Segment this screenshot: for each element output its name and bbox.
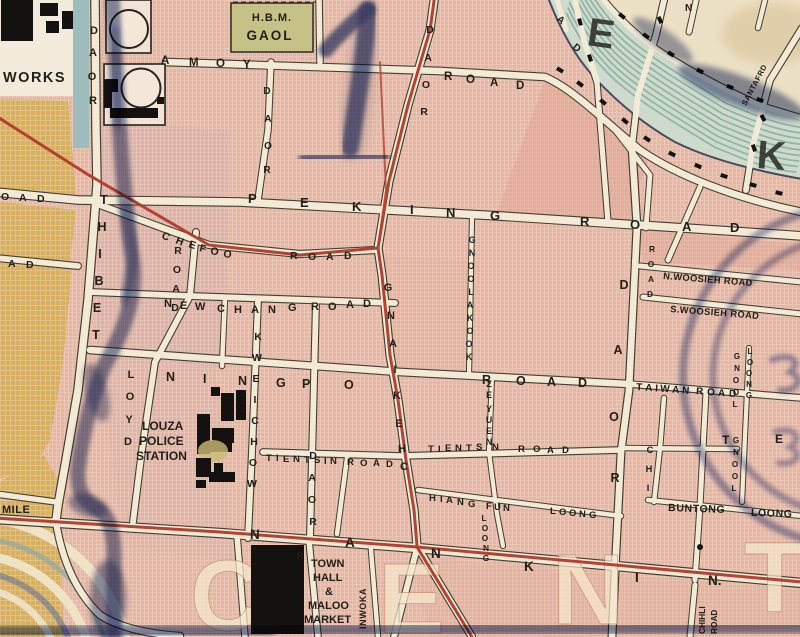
svg-text:R: R bbox=[580, 214, 590, 229]
svg-text:A: A bbox=[264, 114, 271, 125]
svg-text:O: O bbox=[746, 369, 752, 378]
svg-text:I: I bbox=[647, 483, 650, 493]
svg-text:O: O bbox=[88, 71, 97, 83]
svg-text:O: O bbox=[223, 248, 233, 261]
svg-text:D: D bbox=[37, 193, 45, 205]
svg-text:L: L bbox=[733, 400, 738, 409]
svg-text:N: N bbox=[552, 534, 624, 637]
svg-text:I: I bbox=[324, 456, 327, 467]
svg-text:U: U bbox=[486, 415, 492, 425]
svg-text:K: K bbox=[755, 133, 787, 179]
svg-text:Z: Z bbox=[486, 379, 492, 389]
svg-text:A: A bbox=[345, 535, 355, 550]
svg-text:H: H bbox=[646, 464, 653, 474]
svg-text:N: N bbox=[486, 437, 492, 447]
svg-text:W: W bbox=[660, 384, 671, 396]
svg-text:O: O bbox=[308, 494, 316, 506]
svg-text:C: C bbox=[217, 303, 225, 315]
svg-text:A: A bbox=[308, 472, 316, 484]
svg-text:LOUZA: LOUZA bbox=[142, 419, 184, 433]
svg-text:I: I bbox=[440, 494, 443, 505]
svg-text:G: G bbox=[589, 510, 596, 521]
svg-text:A: A bbox=[8, 258, 16, 270]
svg-text:R: R bbox=[297, 551, 304, 561]
svg-text:C: C bbox=[251, 415, 259, 427]
svg-text:D: D bbox=[578, 376, 587, 390]
svg-text:&: & bbox=[325, 586, 333, 598]
svg-text:Y: Y bbox=[125, 414, 133, 426]
svg-text:N: N bbox=[685, 3, 692, 14]
svg-text:D: D bbox=[26, 259, 34, 271]
svg-text:L: L bbox=[550, 506, 556, 517]
svg-text:TOWN: TOWN bbox=[311, 558, 344, 570]
svg-text:N: N bbox=[330, 456, 337, 467]
svg-text:O: O bbox=[1, 191, 9, 203]
svg-text:O: O bbox=[308, 251, 316, 263]
svg-text:POLICE: POLICE bbox=[139, 434, 184, 448]
svg-text:N: N bbox=[457, 497, 464, 508]
svg-text:K: K bbox=[524, 559, 534, 574]
svg-text:H.B.M.: H.B.M. bbox=[252, 12, 292, 24]
svg-text:A: A bbox=[672, 385, 680, 396]
svg-text:N: N bbox=[734, 364, 740, 373]
svg-text:A: A bbox=[326, 251, 334, 263]
svg-text:R: R bbox=[263, 165, 271, 176]
svg-text:O: O bbox=[609, 410, 619, 424]
svg-text:G: G bbox=[483, 553, 489, 563]
svg-text:O: O bbox=[466, 339, 473, 349]
svg-text:R: R bbox=[518, 444, 525, 455]
svg-text:R: R bbox=[311, 301, 319, 313]
svg-text:T: T bbox=[466, 443, 472, 454]
svg-text:H: H bbox=[97, 220, 106, 234]
svg-text:G: G bbox=[468, 499, 475, 510]
svg-text:R: R bbox=[290, 250, 298, 262]
svg-text:E: E bbox=[445, 443, 451, 454]
svg-text:K: K bbox=[467, 313, 474, 323]
svg-text:K: K bbox=[466, 352, 473, 362]
svg-text:G: G bbox=[469, 235, 476, 245]
svg-text:U: U bbox=[494, 502, 501, 513]
svg-text:A: A bbox=[373, 458, 380, 469]
svg-text:P: P bbox=[248, 191, 257, 206]
svg-text:STATION: STATION bbox=[136, 449, 187, 463]
svg-text:N: N bbox=[503, 503, 510, 514]
svg-text:I: I bbox=[98, 247, 101, 261]
svg-text:A: A bbox=[251, 304, 259, 316]
svg-text:R: R bbox=[174, 245, 182, 257]
svg-text:A: A bbox=[613, 343, 622, 357]
svg-text:R: R bbox=[347, 457, 354, 468]
svg-text:T: T bbox=[428, 444, 434, 455]
svg-text:Y: Y bbox=[486, 404, 492, 414]
svg-text:I: I bbox=[203, 372, 206, 386]
svg-text:G: G bbox=[276, 376, 286, 390]
svg-text:O: O bbox=[533, 444, 540, 455]
svg-text:L: L bbox=[481, 513, 486, 523]
svg-text:E: E bbox=[180, 300, 187, 312]
svg-text:O: O bbox=[733, 376, 739, 385]
svg-text:N: N bbox=[579, 509, 586, 520]
svg-text:O: O bbox=[516, 374, 526, 388]
svg-text:O: O bbox=[732, 460, 738, 469]
svg-text:BUNTONG: BUNTONG bbox=[668, 502, 725, 516]
svg-text:O: O bbox=[569, 508, 576, 519]
svg-text:W: W bbox=[252, 352, 262, 364]
svg-text:O: O bbox=[482, 523, 489, 533]
svg-text:E: E bbox=[252, 373, 259, 385]
svg-text:O: O bbox=[360, 458, 367, 469]
svg-text:A: A bbox=[547, 445, 554, 456]
svg-text:R: R bbox=[420, 106, 428, 118]
svg-text:A: A bbox=[682, 219, 692, 234]
svg-text:Y: Y bbox=[243, 59, 251, 71]
svg-text:R: R bbox=[309, 516, 317, 528]
svg-text:A: A bbox=[645, 383, 653, 394]
svg-text:P: P bbox=[302, 377, 310, 391]
svg-text:O: O bbox=[344, 378, 354, 392]
svg-text:I: I bbox=[410, 202, 414, 217]
svg-text:R: R bbox=[649, 244, 655, 254]
svg-text:D: D bbox=[426, 24, 434, 36]
svg-text:N.: N. bbox=[708, 573, 722, 588]
svg-text:D: D bbox=[344, 250, 352, 262]
svg-text:N: N bbox=[268, 304, 276, 316]
svg-text:N: N bbox=[446, 205, 455, 220]
svg-text:O: O bbox=[732, 472, 738, 481]
svg-text:O: O bbox=[467, 326, 474, 336]
svg-text:D: D bbox=[619, 278, 628, 292]
svg-text:N: N bbox=[483, 543, 489, 553]
svg-text:A: A bbox=[89, 47, 97, 59]
svg-text:G: G bbox=[288, 302, 297, 314]
svg-text:O: O bbox=[173, 264, 181, 276]
svg-text:N: N bbox=[387, 310, 395, 322]
svg-text:G: G bbox=[490, 208, 500, 223]
svg-text:H: H bbox=[234, 304, 242, 316]
svg-text:H: H bbox=[250, 436, 258, 448]
svg-text:O: O bbox=[216, 58, 225, 70]
svg-text:T: T bbox=[266, 453, 272, 464]
svg-text:D: D bbox=[90, 25, 98, 37]
svg-text:D: D bbox=[386, 459, 393, 470]
svg-text:H: H bbox=[398, 443, 406, 455]
svg-text:T: T bbox=[92, 328, 100, 342]
svg-text:E: E bbox=[93, 301, 101, 315]
svg-text:N: N bbox=[293, 454, 300, 465]
svg-text:L: L bbox=[128, 369, 135, 381]
svg-text:E: E bbox=[486, 390, 492, 400]
svg-text:GAOL: GAOL bbox=[247, 28, 294, 43]
svg-text:E: E bbox=[300, 195, 309, 210]
svg-text:K: K bbox=[254, 331, 262, 343]
svg-text:O: O bbox=[468, 274, 475, 284]
svg-text:K: K bbox=[352, 199, 362, 214]
svg-text:T: T bbox=[636, 382, 643, 393]
svg-text:O: O bbox=[422, 79, 430, 91]
svg-text:R: R bbox=[89, 95, 97, 107]
svg-text:D: D bbox=[562, 445, 569, 456]
svg-text:D: D bbox=[647, 289, 653, 299]
svg-text:D: D bbox=[124, 436, 132, 448]
svg-text:C: C bbox=[400, 461, 408, 473]
svg-text:A: A bbox=[547, 375, 556, 389]
svg-text:E: E bbox=[486, 426, 492, 436]
svg-text:MILE: MILE bbox=[2, 504, 30, 516]
svg-text:W: W bbox=[195, 301, 206, 313]
svg-text:N: N bbox=[455, 443, 462, 454]
svg-text:H: H bbox=[429, 493, 436, 504]
svg-text:INWOKA: INWOKA bbox=[358, 588, 368, 629]
svg-text:I: I bbox=[635, 570, 639, 585]
svg-text:D: D bbox=[730, 220, 739, 235]
svg-text:G: G bbox=[384, 282, 393, 294]
svg-text:D: D bbox=[363, 298, 371, 310]
svg-text:N: N bbox=[746, 380, 752, 389]
svg-text:L: L bbox=[468, 287, 474, 297]
svg-text:R: R bbox=[444, 71, 453, 83]
svg-text:O: O bbox=[482, 533, 489, 543]
svg-text:O: O bbox=[733, 388, 739, 397]
svg-text:D: D bbox=[171, 302, 179, 314]
svg-text:M: M bbox=[189, 57, 199, 69]
svg-text:O: O bbox=[126, 391, 135, 403]
svg-text:N: N bbox=[492, 442, 499, 453]
svg-text:G: G bbox=[734, 352, 740, 361]
svg-text:I: I bbox=[276, 453, 279, 464]
svg-text:O: O bbox=[249, 457, 257, 469]
svg-text:D: D bbox=[309, 450, 317, 462]
svg-text:T: T bbox=[100, 193, 108, 207]
svg-text:S: S bbox=[476, 442, 482, 453]
svg-text:E: E bbox=[283, 454, 289, 465]
svg-text:A: A bbox=[346, 299, 354, 311]
svg-text:O: O bbox=[468, 261, 475, 271]
svg-text:O: O bbox=[747, 358, 753, 367]
svg-text:O: O bbox=[466, 74, 475, 86]
svg-text:F: F bbox=[486, 501, 492, 512]
svg-text:O: O bbox=[264, 141, 272, 152]
svg-text:A: A bbox=[389, 338, 397, 350]
svg-text:N: N bbox=[431, 546, 441, 561]
svg-text:A: A bbox=[648, 274, 654, 284]
svg-text:C: C bbox=[647, 445, 654, 455]
svg-text:K: K bbox=[393, 390, 401, 402]
svg-text:N: N bbox=[469, 248, 475, 258]
svg-text:D: D bbox=[263, 86, 270, 97]
svg-text:R: R bbox=[610, 471, 619, 485]
svg-text:L: L bbox=[748, 347, 753, 356]
svg-text:WORKS: WORKS bbox=[3, 70, 66, 86]
svg-text:A: A bbox=[424, 52, 432, 64]
svg-text:E: E bbox=[395, 418, 402, 430]
svg-text:A: A bbox=[490, 77, 498, 89]
svg-text:G: G bbox=[746, 391, 752, 400]
svg-text:O: O bbox=[559, 507, 566, 518]
svg-text:N: N bbox=[238, 374, 247, 388]
svg-text:A: A bbox=[467, 300, 474, 310]
svg-text:MALOO: MALOO bbox=[308, 600, 349, 612]
svg-text:A: A bbox=[446, 495, 453, 506]
svg-text:A: A bbox=[19, 192, 27, 204]
svg-text:I: I bbox=[254, 394, 257, 406]
svg-text:I: I bbox=[393, 364, 396, 376]
svg-text:D: D bbox=[516, 80, 524, 92]
svg-text:O: O bbox=[630, 217, 640, 232]
svg-text:W: W bbox=[247, 478, 257, 490]
svg-text:O: O bbox=[328, 301, 337, 313]
svg-text:A: A bbox=[718, 388, 726, 399]
svg-text:N: N bbox=[250, 527, 260, 542]
svg-text:HALL: HALL bbox=[313, 572, 343, 584]
svg-text:A: A bbox=[172, 283, 180, 295]
svg-text:I: I bbox=[438, 444, 441, 455]
svg-text:N: N bbox=[166, 370, 175, 384]
svg-text:O: O bbox=[648, 259, 655, 269]
svg-text:A: A bbox=[161, 55, 169, 67]
svg-text:B: B bbox=[94, 274, 103, 288]
